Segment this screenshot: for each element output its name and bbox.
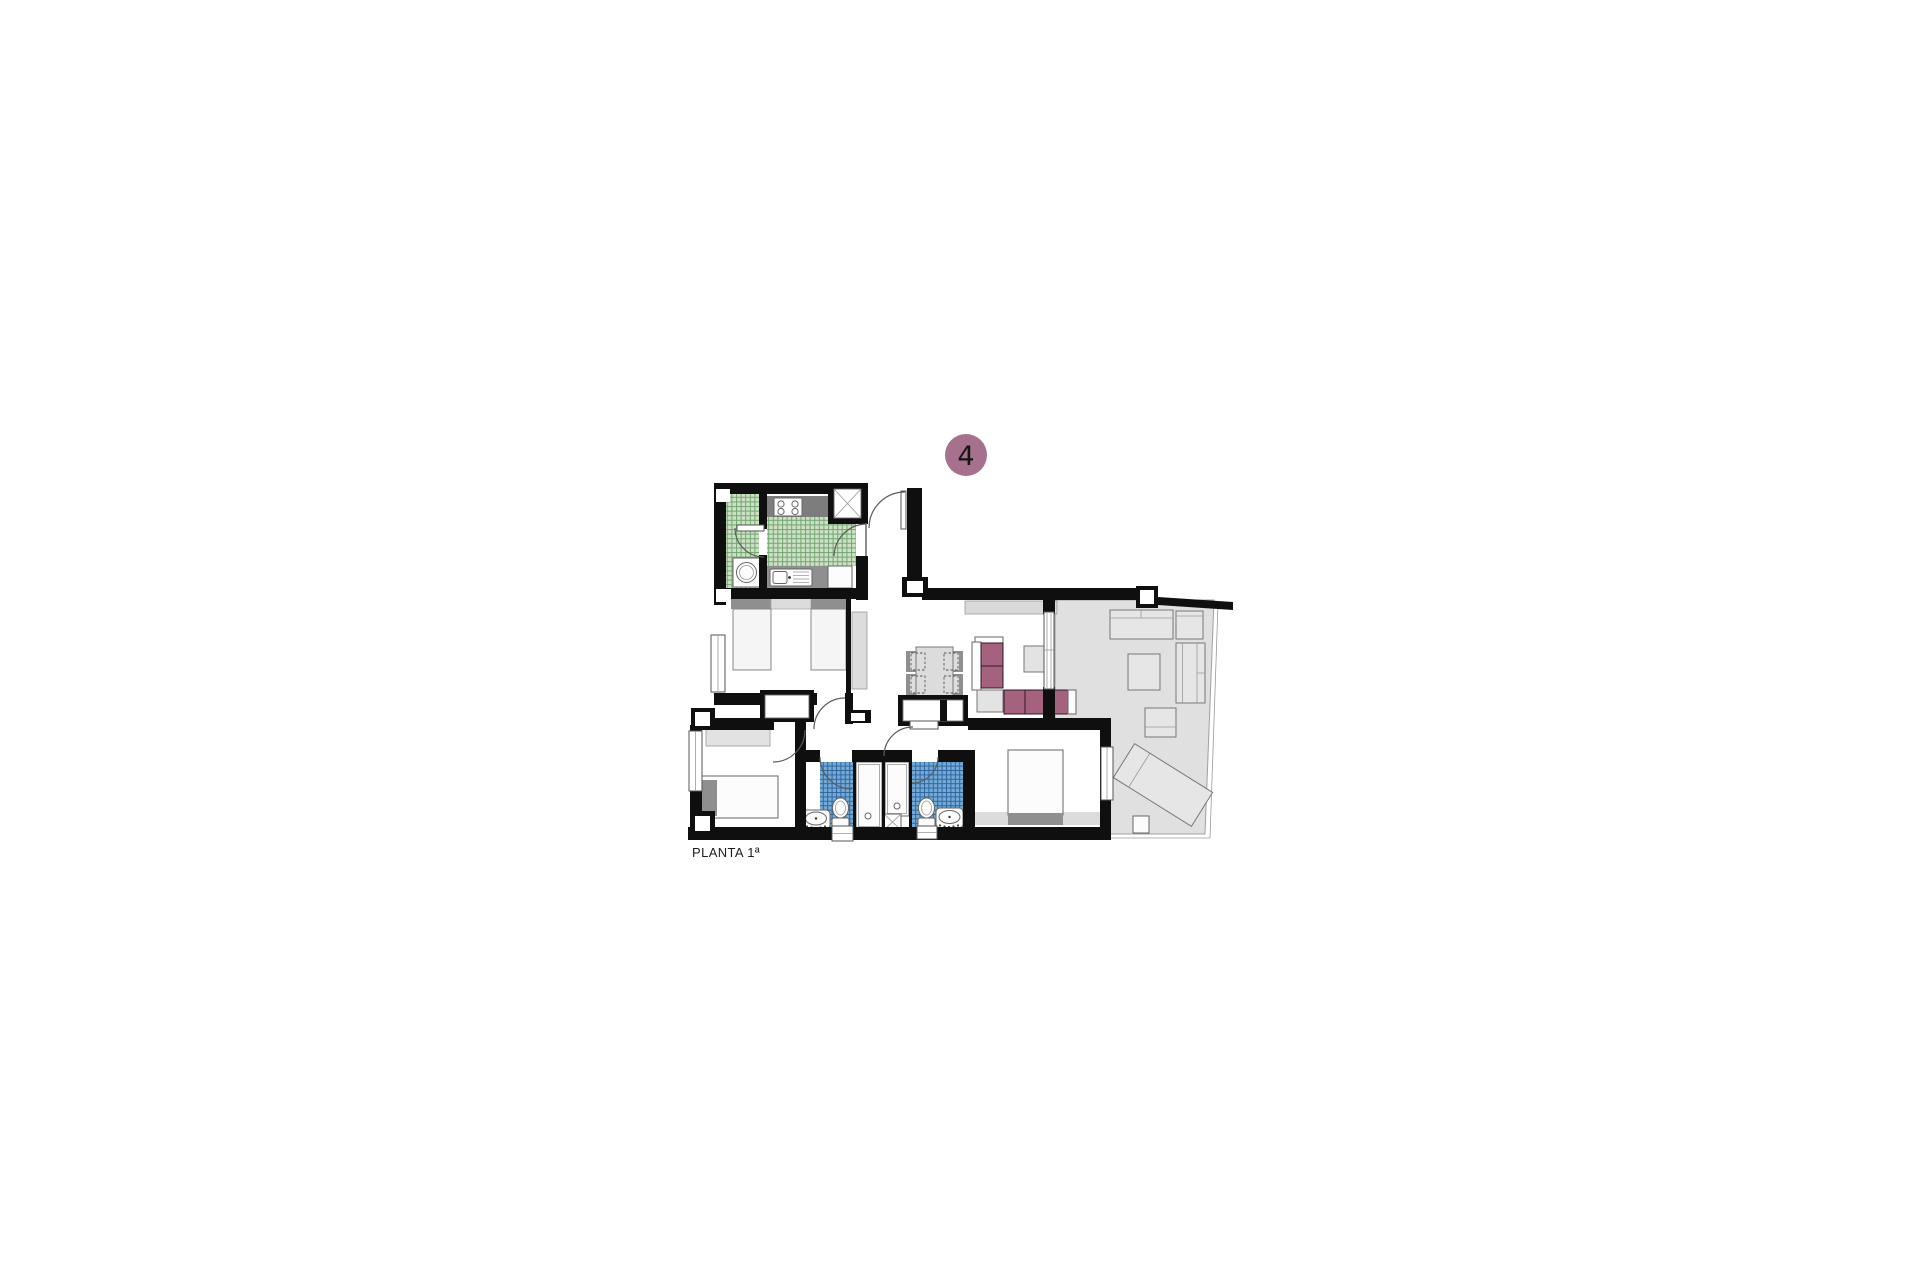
bedroom1-door-arc — [814, 698, 845, 729]
bedroom-2 — [702, 729, 778, 818]
sofa-corner-table — [977, 690, 1003, 712]
dining-table — [916, 647, 953, 696]
terrace-planter — [1133, 816, 1149, 833]
pillar — [716, 589, 731, 602]
pillar — [716, 489, 730, 502]
bed — [733, 609, 771, 670]
stove — [774, 498, 802, 516]
sofa-cushion — [981, 666, 1003, 688]
floor-plan: 4 PLANTA 1ª — [0, 0, 1920, 1280]
wardrobe-dark-right — [811, 598, 846, 609]
bathtub — [856, 762, 882, 829]
pillar — [907, 581, 923, 593]
terrace-slider — [1044, 612, 1054, 689]
bed — [811, 609, 846, 670]
hall-closet — [903, 700, 963, 721]
pillar — [851, 713, 865, 721]
window — [1101, 747, 1113, 800]
bathtub — [885, 762, 909, 816]
outdoor-side-table — [1176, 611, 1203, 639]
bed — [1008, 750, 1063, 815]
bathroom-window — [917, 826, 937, 839]
outdoor-bench — [1176, 643, 1205, 703]
page: 4 PLANTA 1ª — [0, 0, 1920, 1280]
window — [711, 635, 725, 692]
wardrobe-dark-left — [731, 598, 771, 609]
sofa-cushion — [1004, 690, 1025, 714]
outdoor-sofa — [1110, 610, 1173, 639]
window — [689, 731, 702, 791]
sofa-cushion — [1025, 690, 1046, 714]
wardrobe — [706, 729, 770, 746]
bathroom-window — [832, 826, 853, 841]
washbasin — [803, 810, 830, 829]
bed-headboard — [1008, 813, 1063, 825]
ventilation-shaft — [834, 489, 861, 518]
kitchen-sink — [770, 569, 812, 586]
pillar — [695, 712, 710, 726]
pillar — [1140, 590, 1154, 604]
closet-divider — [940, 700, 947, 721]
bed-headboard — [702, 780, 717, 816]
washing-machine — [733, 558, 760, 587]
wall-recess — [765, 695, 809, 718]
master-bedroom — [972, 750, 1100, 825]
hallway-wardrobe — [852, 612, 867, 689]
kitchen-floor-tiles — [767, 517, 856, 566]
entry-door — [869, 491, 906, 529]
outdoor-chair — [1145, 708, 1176, 737]
washbasin — [936, 808, 963, 828]
toilet — [918, 798, 935, 828]
bedroom-1 — [731, 596, 846, 670]
unit-badge: 4 — [945, 434, 987, 476]
plan-label: PLANTA 1ª — [692, 845, 760, 860]
sofa-cushion — [981, 643, 1003, 666]
toilet — [832, 798, 849, 828]
dishwasher — [828, 566, 852, 588]
outdoor-coffee-table — [1128, 654, 1160, 690]
unit-badge-number: 4 — [957, 441, 974, 472]
pillar — [695, 816, 710, 831]
